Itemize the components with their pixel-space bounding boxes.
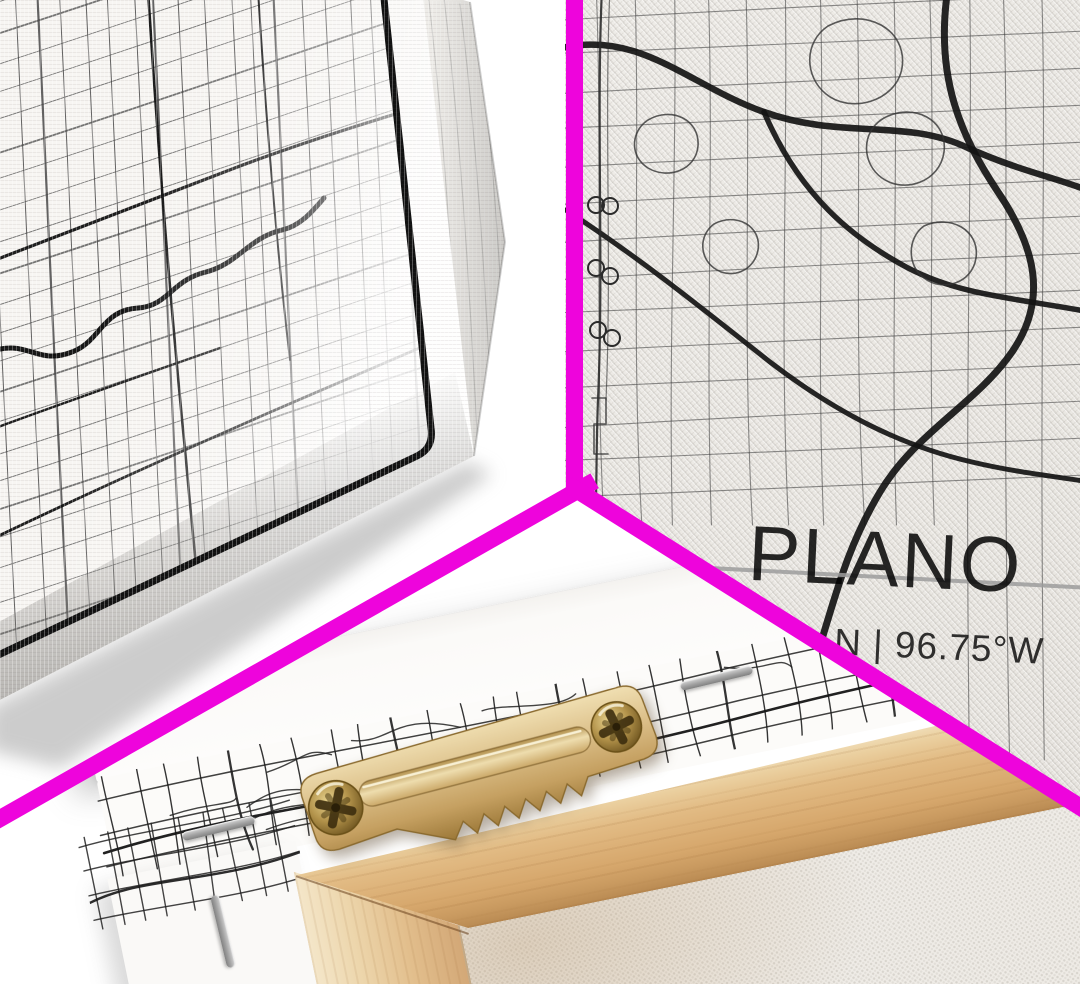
divider-line-vertical [566,0,583,500]
city-name-label: PLANO [746,508,1024,611]
product-photo-collage: PLANO N | 96.75°W [0,0,1080,984]
